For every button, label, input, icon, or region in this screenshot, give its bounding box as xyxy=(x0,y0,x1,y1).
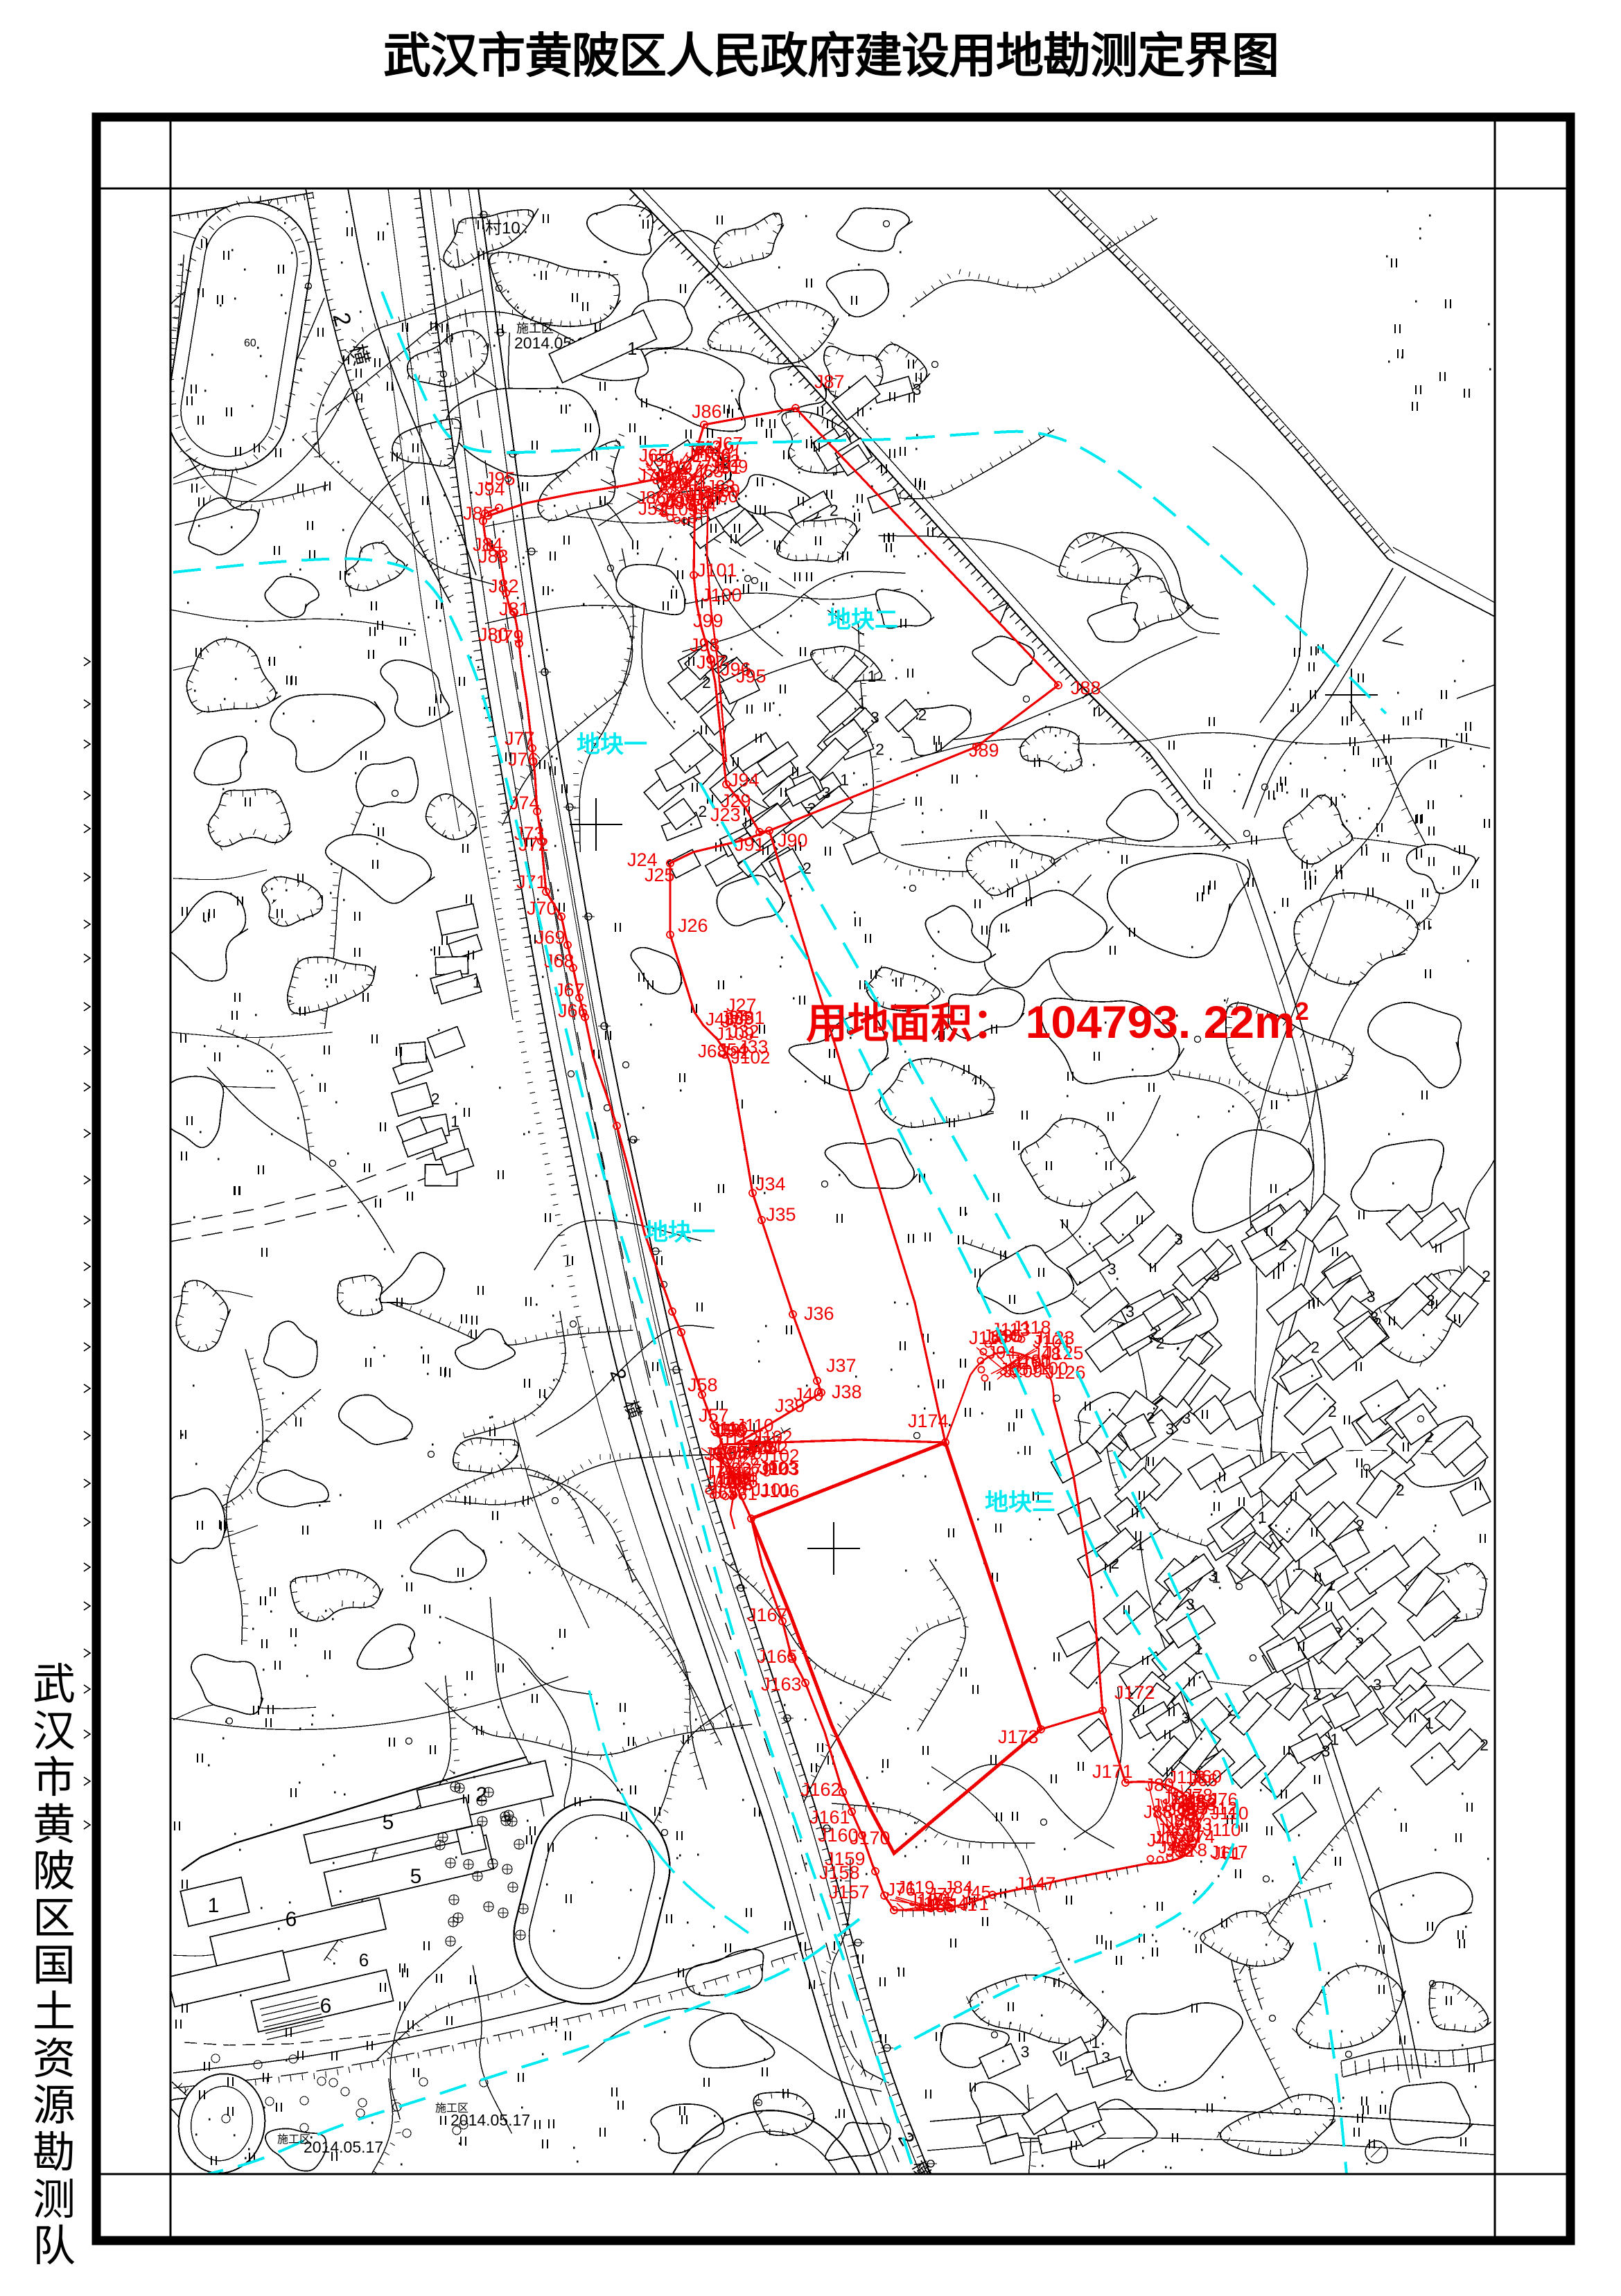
svg-text:1: 1 xyxy=(1136,1536,1145,1554)
svg-text:2: 2 xyxy=(875,740,884,758)
svg-text:J42: J42 xyxy=(692,436,721,457)
svg-text:1: 1 xyxy=(1425,1714,1434,1732)
svg-text:J69: J69 xyxy=(535,927,566,948)
svg-text:3: 3 xyxy=(1208,1567,1217,1585)
svg-text:3: 3 xyxy=(1125,1302,1134,1321)
svg-text:2: 2 xyxy=(1125,2066,1134,2084)
svg-text:黄: 黄 xyxy=(33,1801,76,1849)
svg-text:3: 3 xyxy=(1322,1742,1331,1760)
svg-text:3: 3 xyxy=(1107,1260,1116,1278)
svg-text:J95: J95 xyxy=(736,666,766,687)
svg-text:5: 5 xyxy=(410,1865,422,1888)
svg-text:J79: J79 xyxy=(493,626,524,647)
svg-text:J87: J87 xyxy=(814,371,845,392)
svg-text:3: 3 xyxy=(870,709,879,727)
svg-text:J90: J90 xyxy=(778,830,808,851)
svg-text:J163: J163 xyxy=(761,1674,802,1695)
svg-text:J117: J117 xyxy=(1210,1842,1247,1862)
svg-text:J89: J89 xyxy=(969,740,999,761)
svg-text:武: 武 xyxy=(33,1661,76,1708)
svg-text:1: 1 xyxy=(1092,2033,1101,2051)
svg-text:J38: J38 xyxy=(832,1381,862,1402)
svg-text:2: 2 xyxy=(698,802,707,820)
svg-text:J158: J158 xyxy=(819,1862,860,1883)
svg-text:J171: J171 xyxy=(1092,1761,1133,1782)
svg-text:1: 1 xyxy=(840,771,849,789)
svg-text:3: 3 xyxy=(1367,1288,1376,1306)
svg-text:1: 1 xyxy=(857,694,866,712)
svg-text:市: 市 xyxy=(33,1754,76,1802)
svg-text:J173: J173 xyxy=(998,1727,1039,1747)
svg-text:J82: J82 xyxy=(489,576,519,597)
svg-text:J54: J54 xyxy=(718,1039,747,1060)
svg-text:施工区: 施工区 xyxy=(516,321,554,335)
svg-text:J58: J58 xyxy=(687,1375,718,1395)
svg-text:2: 2 xyxy=(1480,1736,1489,1754)
svg-text:2: 2 xyxy=(1396,1481,1405,1499)
svg-text:J75: J75 xyxy=(748,1437,777,1458)
svg-text:J83: J83 xyxy=(478,546,509,567)
svg-text:6: 6 xyxy=(359,1950,369,1970)
svg-text:J76: J76 xyxy=(508,749,538,770)
svg-text:1: 1 xyxy=(1258,1508,1267,1526)
svg-text:J40: J40 xyxy=(794,1384,824,1405)
svg-text:2: 2 xyxy=(1311,1338,1320,1356)
svg-text:1: 1 xyxy=(1194,1640,1203,1658)
svg-text:3: 3 xyxy=(822,784,831,802)
svg-text:土: 土 xyxy=(33,1988,76,2036)
svg-text:3: 3 xyxy=(1186,1595,1195,1613)
svg-text:1: 1 xyxy=(627,338,637,359)
svg-text:J99: J99 xyxy=(693,610,724,631)
svg-text:2: 2 xyxy=(1313,1685,1322,1703)
svg-text:1: 1 xyxy=(1330,1731,1339,1749)
svg-text:3: 3 xyxy=(1166,1420,1175,1438)
svg-text:1: 1 xyxy=(208,1894,220,1917)
svg-text:2: 2 xyxy=(1328,1402,1337,1420)
svg-text:J172: J172 xyxy=(1114,1682,1155,1703)
svg-text:源: 源 xyxy=(33,2082,76,2130)
svg-text:村10: 村10 xyxy=(485,219,520,238)
svg-text:J25: J25 xyxy=(645,865,675,885)
svg-text:汉: 汉 xyxy=(33,1708,76,1756)
svg-text:J93: J93 xyxy=(718,1420,747,1440)
svg-text:资: 资 xyxy=(33,2036,76,2083)
svg-text:J34: J34 xyxy=(755,1174,786,1194)
svg-text:3: 3 xyxy=(1182,1709,1191,1727)
svg-text:2014.05.17: 2014.05.17 xyxy=(304,2138,383,2156)
svg-text:J77: J77 xyxy=(696,488,725,509)
svg-text:用地面积： 104793. 22m2: 用地面积： 104793. 22m2 xyxy=(806,996,1309,1048)
svg-text:1: 1 xyxy=(450,1112,459,1130)
svg-text:J101: J101 xyxy=(752,1479,791,1500)
svg-text:J77: J77 xyxy=(721,1011,751,1032)
svg-text:J86: J86 xyxy=(692,401,722,422)
svg-text:陂: 陂 xyxy=(33,1848,76,1896)
svg-text:2: 2 xyxy=(830,502,839,520)
svg-text:2: 2 xyxy=(431,1090,440,1108)
svg-text:J81: J81 xyxy=(499,599,529,619)
svg-text:J109: J109 xyxy=(709,456,748,477)
svg-text:地块三: 地块三 xyxy=(985,1490,1055,1516)
svg-text:国: 国 xyxy=(33,1942,76,1990)
svg-text:J95: J95 xyxy=(485,468,516,489)
svg-text:施工区: 施工区 xyxy=(277,2133,310,2146)
svg-text:J94: J94 xyxy=(729,770,760,791)
svg-text:地块二: 地块二 xyxy=(827,607,898,633)
svg-text:J170: J170 xyxy=(850,1828,891,1848)
svg-text:1: 1 xyxy=(867,667,876,685)
svg-text:60: 60 xyxy=(244,337,256,349)
svg-text:J167: J167 xyxy=(747,1605,788,1625)
svg-text:6: 6 xyxy=(320,1995,332,2017)
svg-text:施工区: 施工区 xyxy=(435,2102,468,2114)
svg-text:J157: J157 xyxy=(829,1882,870,1902)
svg-text:J70: J70 xyxy=(527,898,557,919)
svg-text:J76: J76 xyxy=(886,1879,915,1900)
svg-text:J85: J85 xyxy=(463,503,493,524)
svg-text:J76: J76 xyxy=(1209,1789,1238,1810)
svg-text:3: 3 xyxy=(1426,1291,1435,1309)
svg-text:1: 1 xyxy=(473,973,482,991)
svg-text:地块一: 地块一 xyxy=(577,732,647,758)
svg-text:区: 区 xyxy=(33,1895,76,1943)
svg-text:队: 队 xyxy=(33,2223,76,2270)
svg-text:J77: J77 xyxy=(505,728,535,749)
svg-text:武汉市黄陂区人民政府建设用地勘测定界图: 武汉市黄陂区人民政府建设用地勘测定界图 xyxy=(383,29,1279,82)
svg-text:J88: J88 xyxy=(1071,678,1101,698)
svg-text:测: 测 xyxy=(33,2176,76,2224)
svg-text:J35: J35 xyxy=(766,1204,796,1225)
svg-text:2: 2 xyxy=(918,706,927,724)
svg-text:J147: J147 xyxy=(1015,1873,1056,1894)
svg-text:J110: J110 xyxy=(1203,1819,1241,1840)
svg-text:地块一: 地块一 xyxy=(645,1219,715,1246)
svg-text:3: 3 xyxy=(1021,2042,1030,2060)
svg-text:3: 3 xyxy=(1373,1675,1382,1693)
svg-text:J26: J26 xyxy=(678,915,708,936)
svg-text:J91: J91 xyxy=(735,834,765,855)
svg-text:5: 5 xyxy=(383,1811,394,1834)
svg-text:J100: J100 xyxy=(701,585,742,606)
svg-text:J162: J162 xyxy=(800,1779,841,1800)
svg-text:3: 3 xyxy=(1174,1230,1183,1248)
svg-text:J174: J174 xyxy=(908,1411,949,1431)
svg-text:2: 2 xyxy=(1482,1267,1491,1285)
svg-text:6: 6 xyxy=(286,1908,297,1931)
svg-text:J37: J37 xyxy=(826,1355,857,1376)
svg-text:勘: 勘 xyxy=(33,2129,76,2177)
svg-text:J165: J165 xyxy=(757,1646,798,1667)
svg-text:J101: J101 xyxy=(696,560,737,581)
svg-text:J36: J36 xyxy=(804,1303,834,1324)
svg-text:J74: J74 xyxy=(509,793,540,813)
